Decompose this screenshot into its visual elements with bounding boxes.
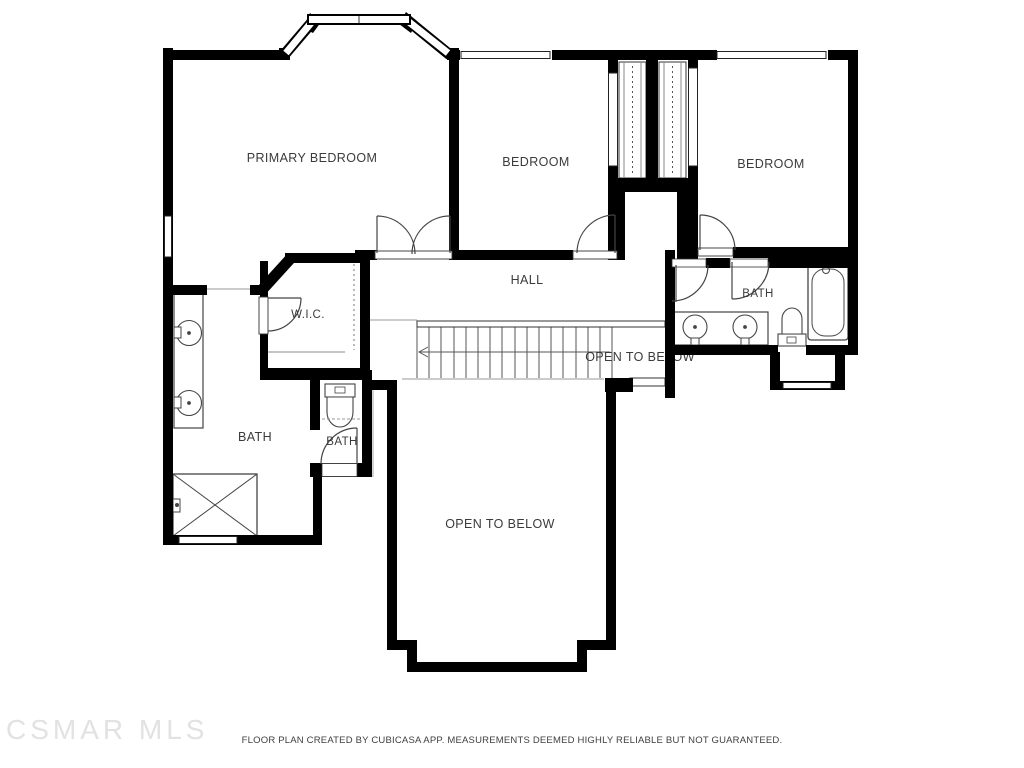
door-sill <box>375 251 452 259</box>
toilet-small-bath <box>325 384 355 427</box>
bath-primary-label: BATH <box>238 430 272 444</box>
floor-plan-page: OPEN TO BELOW <box>0 0 1024 768</box>
door-sill <box>259 297 268 334</box>
floor-plan-svg: OPEN TO BELOW <box>0 0 1024 710</box>
door-arc <box>700 215 735 250</box>
bath-ensuite-label: BATH <box>742 288 773 300</box>
door-sill <box>672 259 706 267</box>
disclaimer-text: FLOOR PLAN CREATED BY CUBICASA APP. MEAS… <box>0 735 1024 746</box>
wic-label: W.I.C. <box>291 309 325 321</box>
door-sill <box>730 259 768 267</box>
open-below-main-label: OPEN TO BELOW <box>445 517 555 531</box>
door-sill <box>573 251 617 259</box>
window <box>165 216 172 257</box>
ensuite-vanity <box>673 312 768 345</box>
hall-label: HALL <box>511 273 544 287</box>
door-sill <box>698 248 733 256</box>
primary-bedroom-label: PRIMARY BEDROOM <box>247 151 378 165</box>
door-arc <box>672 265 708 302</box>
bath-small-label: BATH <box>326 436 357 448</box>
stair-side-rail <box>630 378 665 386</box>
staircase <box>402 327 612 379</box>
faucet-icon <box>174 327 181 338</box>
toilet-ensuite <box>778 308 806 346</box>
bathtub-icon <box>808 262 848 340</box>
bay-window <box>284 14 450 55</box>
faucet-icon <box>174 397 181 408</box>
window <box>461 52 550 59</box>
stair-top-rail <box>417 321 665 327</box>
shower <box>173 474 257 536</box>
window <box>179 537 237 544</box>
bedroom-center-label: BEDROOM <box>502 155 569 169</box>
bedroom-right-label: BEDROOM <box>737 157 804 171</box>
primary-vanity <box>174 293 203 428</box>
faucet-icon <box>741 338 749 345</box>
door-sill <box>322 464 357 477</box>
double-door-arc <box>377 216 450 254</box>
window <box>783 383 831 389</box>
faucet-icon <box>691 338 699 345</box>
window <box>717 52 826 59</box>
